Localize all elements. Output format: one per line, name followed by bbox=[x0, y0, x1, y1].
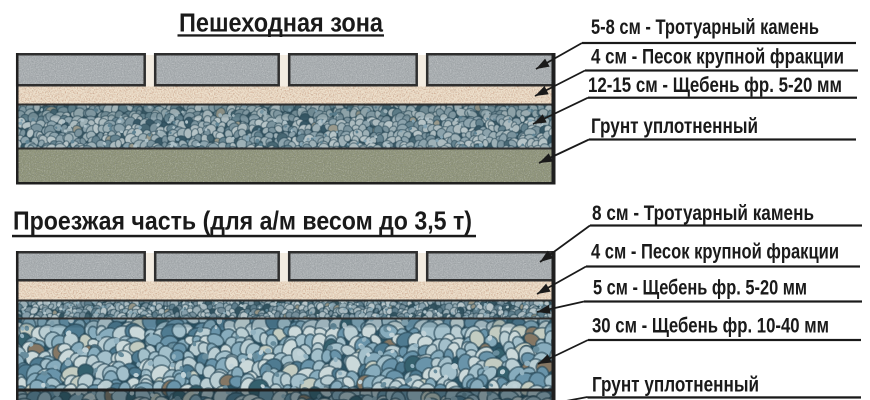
svg-text:5 см - Щебень фр. 5-20 мм: 5 см - Щебень фр. 5-20 мм bbox=[593, 277, 807, 300]
svg-text:Грунт уплотненный: Грунт уплотненный bbox=[592, 374, 759, 397]
svg-text:30 см - Щебень фр. 10-40 мм: 30 см - Щебень фр. 10-40 мм bbox=[592, 314, 829, 337]
svg-text:Проезжая часть (для а/м весом: Проезжая часть (для а/м весом до 3,5 т) bbox=[13, 206, 472, 236]
svg-text:8 см - Тротуарный камень: 8 см - Тротуарный камень bbox=[592, 202, 814, 225]
svg-text:Пешеходная зона: Пешеходная зона bbox=[179, 10, 384, 38]
svg-text:5-8 см - Тротуарный камень: 5-8 см - Тротуарный камень bbox=[591, 16, 819, 39]
svg-text:12-15 см - Щебень фр. 5-20 мм: 12-15 см - Щебень фр. 5-20 мм bbox=[588, 74, 842, 97]
svg-text:4 см - Песок крупной фракции: 4 см - Песок крупной фракции bbox=[591, 45, 844, 68]
svg-text:Грунт уплотненный: Грунт уплотненный bbox=[591, 115, 758, 138]
svg-text:4 см - Песок крупной фракции: 4 см - Песок крупной фракции bbox=[591, 240, 839, 263]
